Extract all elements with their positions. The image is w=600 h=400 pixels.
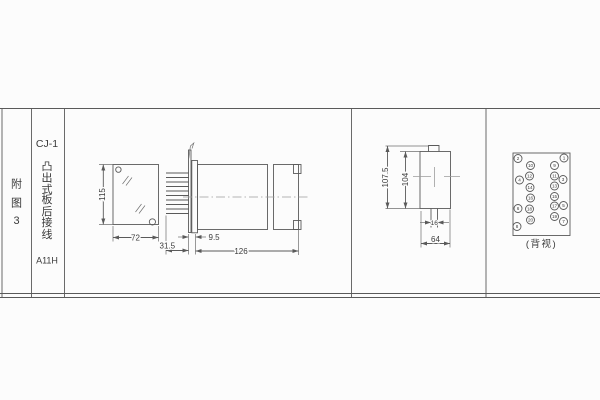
subtitle-char: 接 [42, 216, 53, 229]
terminal-pin-19: 19 [551, 213, 559, 221]
code-label: A11H [36, 256, 58, 266]
dimension-text-body-height: 104 [401, 172, 410, 186]
svg-text:14: 14 [527, 185, 533, 190]
dimension-text-body-width: 64 [431, 235, 440, 244]
terminal-pin-3: 3 [559, 176, 567, 184]
terminal-pin-8: 8 [513, 223, 521, 231]
side-view: 9.5 31.5 126 [160, 143, 310, 256]
dimension-text-height: 115 [98, 188, 107, 201]
model-label: CJ-1 [36, 138, 58, 150]
svg-text:1: 1 [563, 156, 566, 161]
terminal-block-tab-bottom [294, 221, 302, 230]
front-extension-lines [99, 165, 159, 242]
subtitle-char: 出 [42, 171, 53, 185]
svg-text:20: 20 [528, 218, 534, 223]
terminal-pin-6: 6 [514, 205, 522, 213]
terminal-pin-17: 17 [551, 202, 559, 210]
side-extension-lines [166, 216, 299, 256]
terminal-pin-2: 2 [514, 155, 522, 163]
terminal-pin-11: 11 [551, 172, 559, 180]
svg-text:7: 7 [562, 219, 565, 224]
mount-extension-lines [386, 146, 451, 248]
mount-body-outline [420, 152, 451, 209]
terminal-pin-9: 9 [551, 162, 559, 170]
mount-top-tab [429, 146, 440, 152]
svg-text:8: 8 [516, 224, 519, 229]
terminal-block-tab-top [294, 165, 302, 174]
svg-text:16: 16 [528, 196, 534, 201]
svg-text:11: 11 [552, 174, 557, 179]
subtitle-char: 板 [42, 192, 53, 206]
svg-text:18: 18 [527, 207, 533, 212]
mount-view: 107.5 104 16 64 [381, 146, 460, 248]
front-flange [192, 161, 198, 233]
terminal-pins [166, 173, 189, 214]
dimension-text-pin-length: 31.5 [160, 242, 176, 251]
drawing-sheet: 附 图 3 CJ-1 凸 出 式 板 后 接 线 A11H 115 72 [0, 0, 600, 400]
subtitle-char: 凸 [42, 161, 53, 173]
svg-text:10: 10 [528, 163, 534, 168]
svg-text:4: 4 [518, 178, 521, 183]
svg-text:13: 13 [552, 184, 558, 189]
terminal-pin-1: 1 [560, 154, 568, 162]
terminal-pin-14: 14 [526, 184, 534, 192]
dimension-text-overall-height: 107.5 [381, 167, 390, 188]
svg-text:2: 2 [517, 156, 520, 161]
svg-text:3: 3 [562, 177, 565, 182]
technical-drawing: 附 图 3 CJ-1 凸 出 式 板 后 接 线 A11H 115 72 [0, 0, 600, 400]
svg-text:6: 6 [517, 206, 520, 211]
terminal-pin-13: 13 [551, 182, 559, 190]
svg-text:5: 5 [562, 203, 565, 208]
sheet-frame [0, 109, 600, 298]
sidebar: 附 图 3 CJ-1 凸 出 式 板 后 接 线 A11H [11, 138, 58, 266]
cover-screw-top-left [116, 167, 121, 172]
front-cover-outline [113, 165, 159, 225]
figure-label-char: 图 [11, 197, 22, 210]
back-view: 2 4 6 8 1 3 5 7 10 12 14 16 18 20 9 11 1… [513, 153, 570, 250]
svg-text:19: 19 [552, 214, 558, 219]
terminal-pin-5: 5 [560, 202, 568, 210]
dimension-text-slot-width: 16 [431, 220, 439, 227]
terminal-pin-18: 18 [526, 205, 534, 213]
terminal-pin-7: 7 [560, 218, 568, 226]
dimension-text-length: 126 [234, 247, 248, 256]
terminal-pin-16: 16 [527, 194, 535, 202]
front-view: 115 72 [98, 165, 159, 243]
svg-text:12: 12 [527, 174, 533, 179]
terminal-pin-12: 12 [526, 172, 534, 180]
dimension-text-width: 72 [131, 233, 140, 242]
svg-text:17: 17 [552, 204, 558, 209]
svg-text:9: 9 [553, 163, 556, 168]
glass-hatch-marks [123, 176, 146, 214]
terminal-pin-15: 15 [551, 193, 559, 201]
figure-label-char: 附 [11, 177, 22, 191]
svg-text:15: 15 [552, 194, 558, 199]
mounting-plate [189, 150, 192, 233]
terminal-pin-4: 4 [516, 176, 524, 184]
terminal-pin-10: 10 [527, 162, 535, 170]
dimension-text-flange: 9.5 [209, 233, 221, 242]
subtitle-char: 线 [42, 227, 53, 241]
back-view-caption: (背视) [526, 238, 557, 250]
terminal-pin-20: 20 [527, 216, 535, 224]
figure-number: 3 [13, 215, 19, 227]
